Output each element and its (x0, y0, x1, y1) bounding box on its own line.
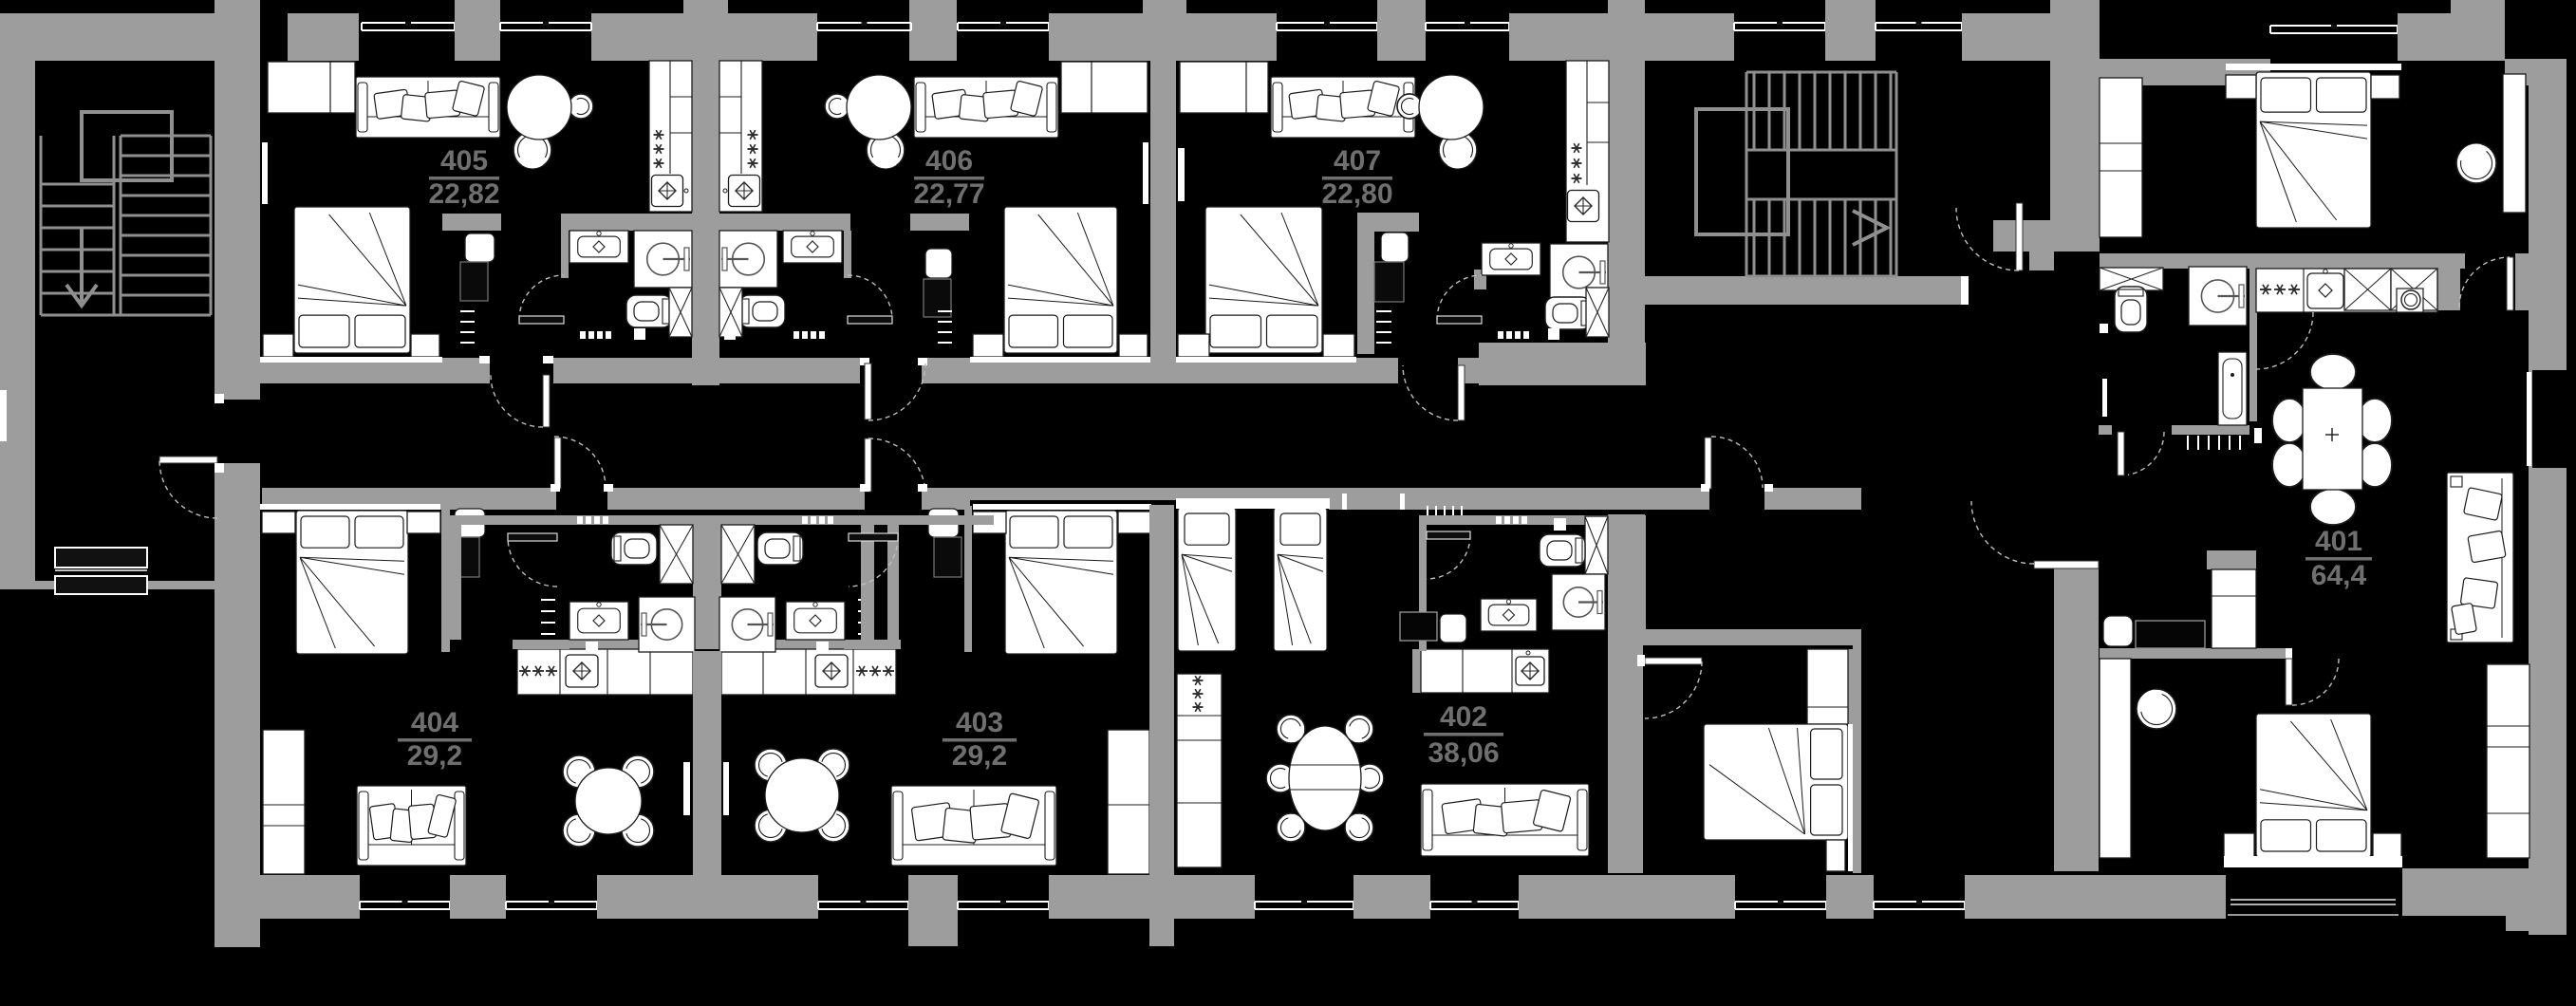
svg-text:29,2: 29,2 (952, 740, 1007, 772)
svg-text:403: 403 (956, 707, 1003, 738)
svg-text:407: 407 (1334, 145, 1381, 177)
svg-text:64,4: 64,4 (2311, 560, 2367, 591)
svg-text:29,2: 29,2 (407, 740, 462, 772)
svg-text:22,77: 22,77 (913, 178, 984, 210)
svg-text:22,80: 22,80 (1321, 178, 1392, 210)
svg-text:404: 404 (411, 707, 458, 738)
svg-text:22,82: 22,82 (428, 178, 499, 210)
svg-text:405: 405 (440, 145, 488, 177)
svg-text:402: 402 (1440, 701, 1487, 733)
svg-text:406: 406 (925, 145, 973, 177)
svg-text:401: 401 (2315, 526, 2362, 557)
svg-text:38,06: 38,06 (1428, 737, 1499, 769)
